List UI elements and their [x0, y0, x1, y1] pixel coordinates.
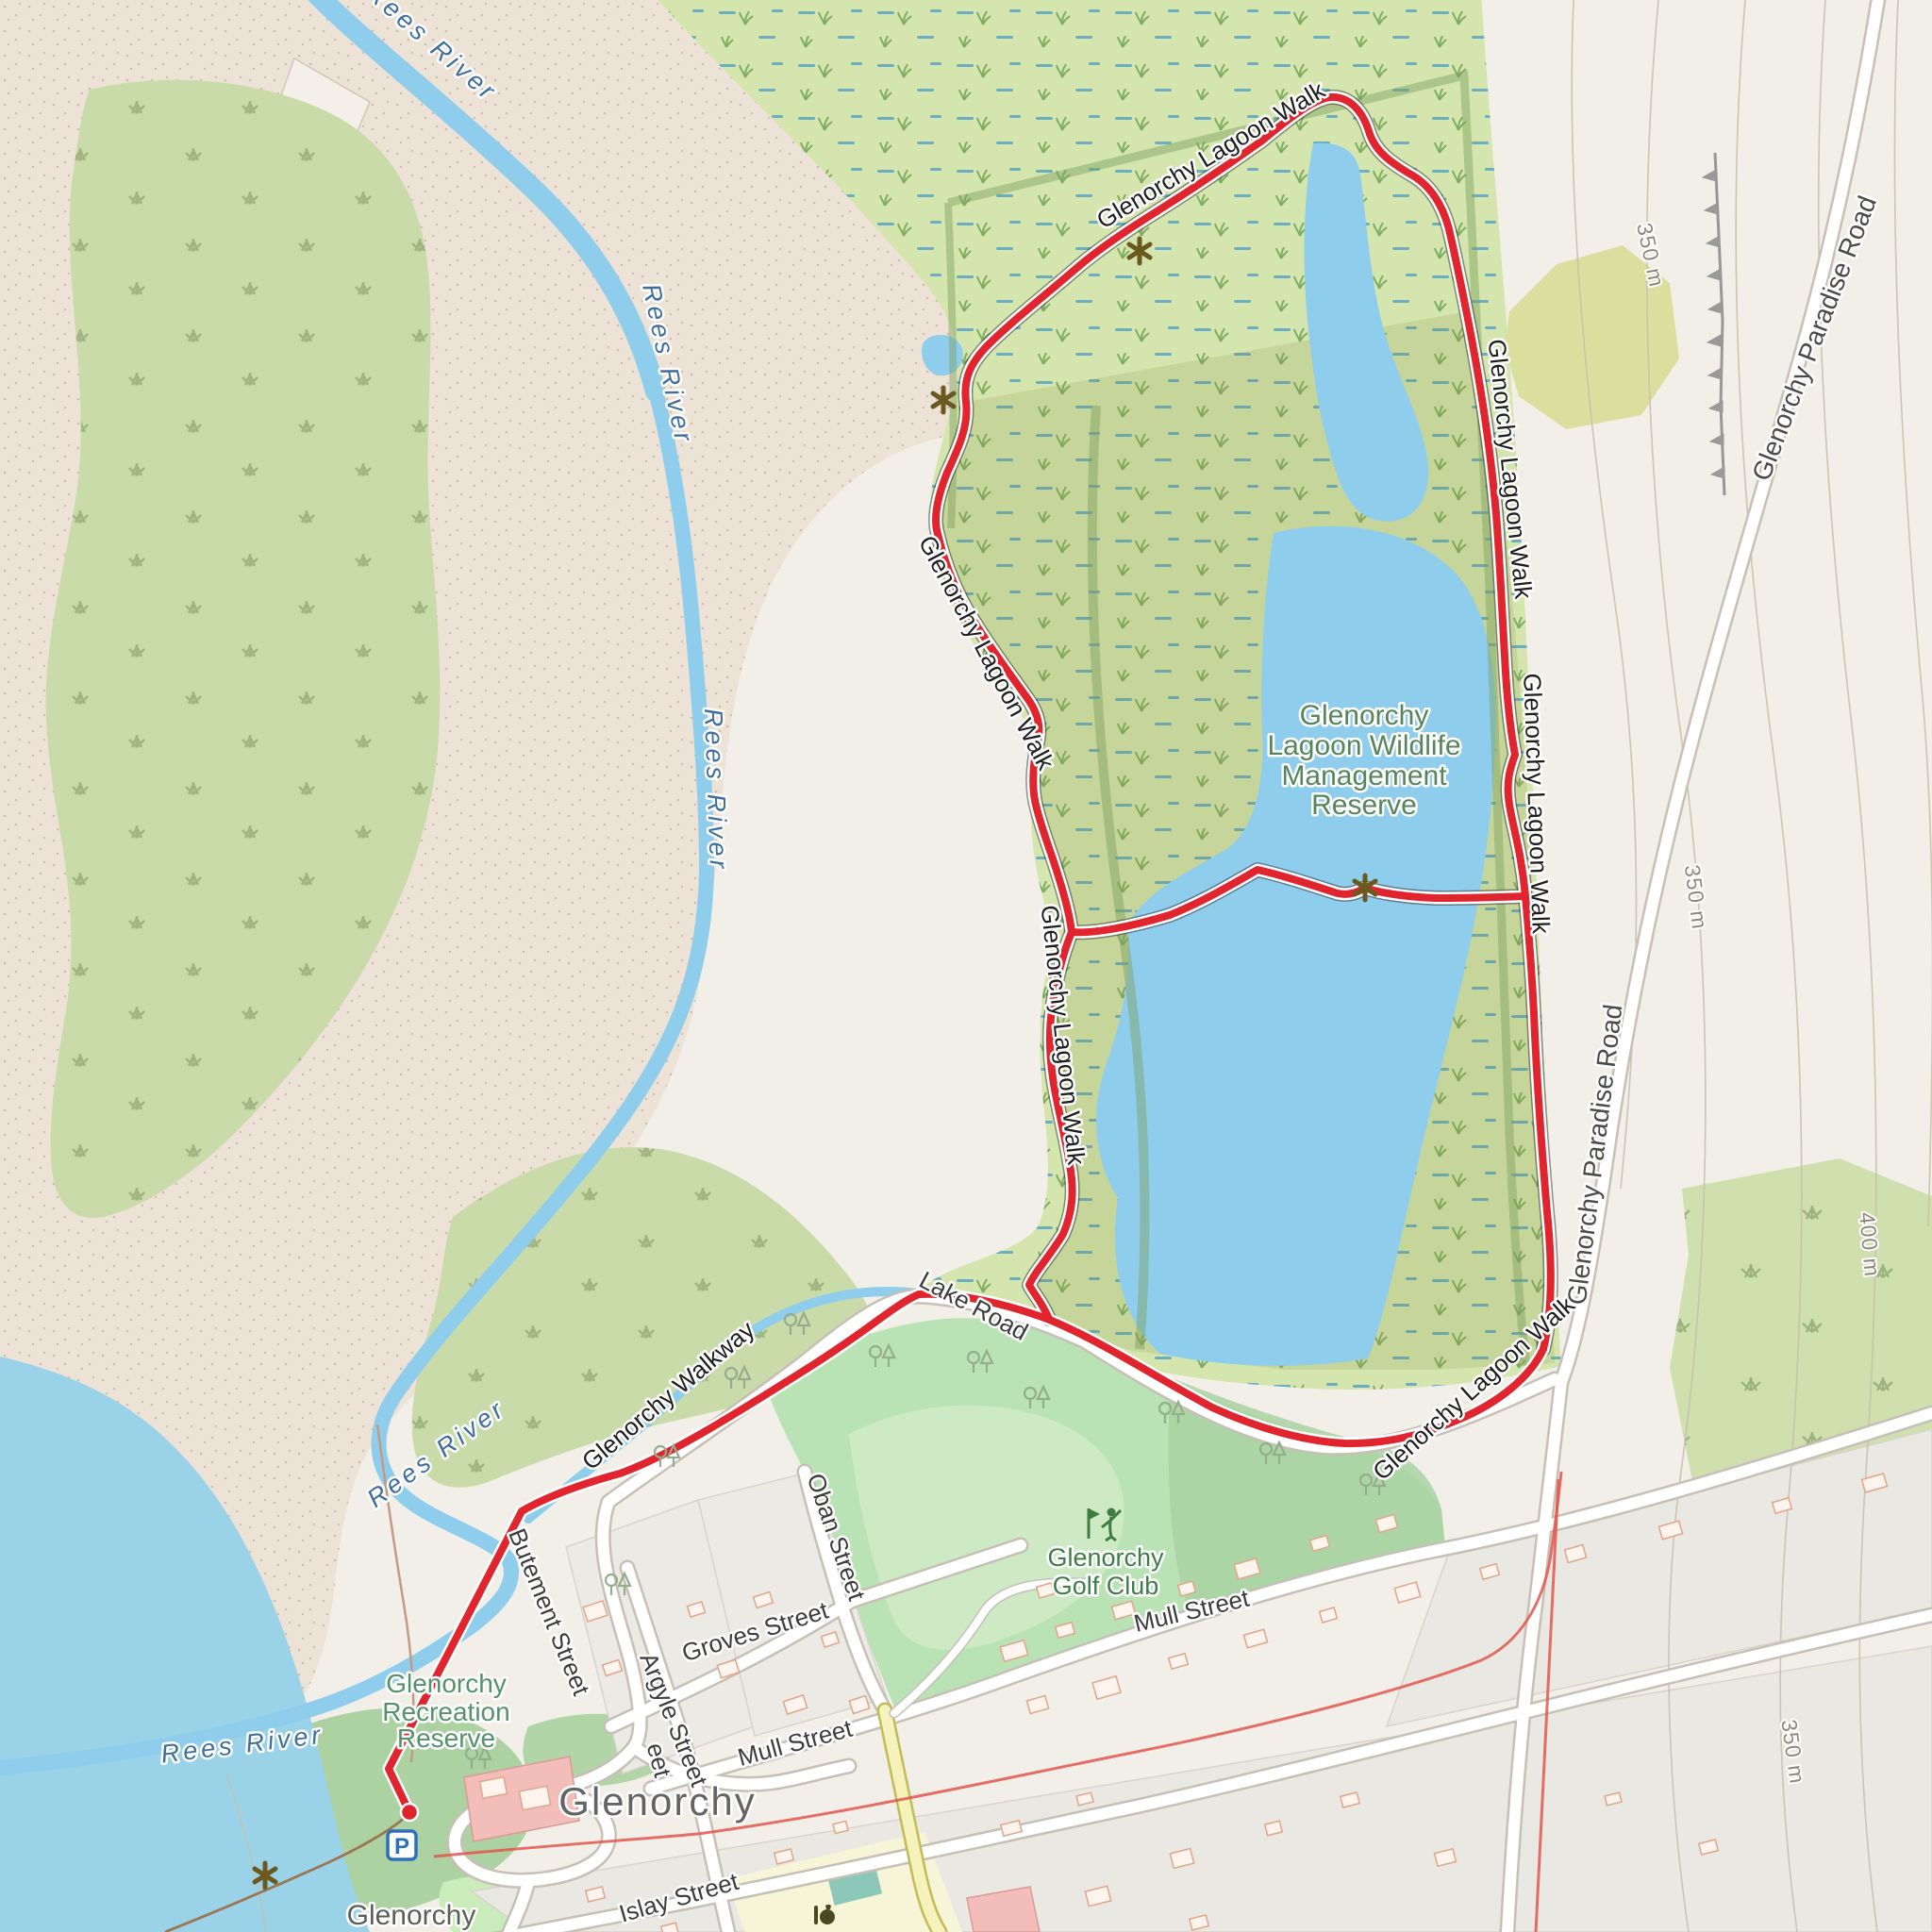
parking-icon: P — [388, 1831, 416, 1859]
golf-club-label-line2: Golf Club — [1053, 1572, 1159, 1600]
town-label-small: Glenorchy — [347, 1900, 476, 1931]
reserve-label-line2: Lagoon Wildlife — [1267, 730, 1460, 761]
recreation-label-line1: Glenorchy — [386, 1669, 507, 1698]
river-label: Rees River — [699, 708, 733, 872]
reserve-label-line3: Management — [1281, 760, 1447, 791]
recreation-label-line2: Recreation — [382, 1697, 509, 1726]
recreation-label-line3: Reserve — [397, 1724, 495, 1753]
reserve-label-line1: Glenorchy — [1300, 700, 1429, 731]
building — [480, 1777, 508, 1799]
reserve-label-line4: Reserve — [1311, 790, 1417, 821]
parking-letter: P — [394, 1834, 409, 1859]
route-endpoint-dot — [401, 1804, 418, 1821]
town-label: Glenorchy — [558, 1779, 756, 1824]
map-canvas[interactable]: P Rees River Rees River Rees River Rees … — [0, 0, 1932, 1932]
golf-club-label-line1: Glenorchy — [1047, 1543, 1164, 1572]
